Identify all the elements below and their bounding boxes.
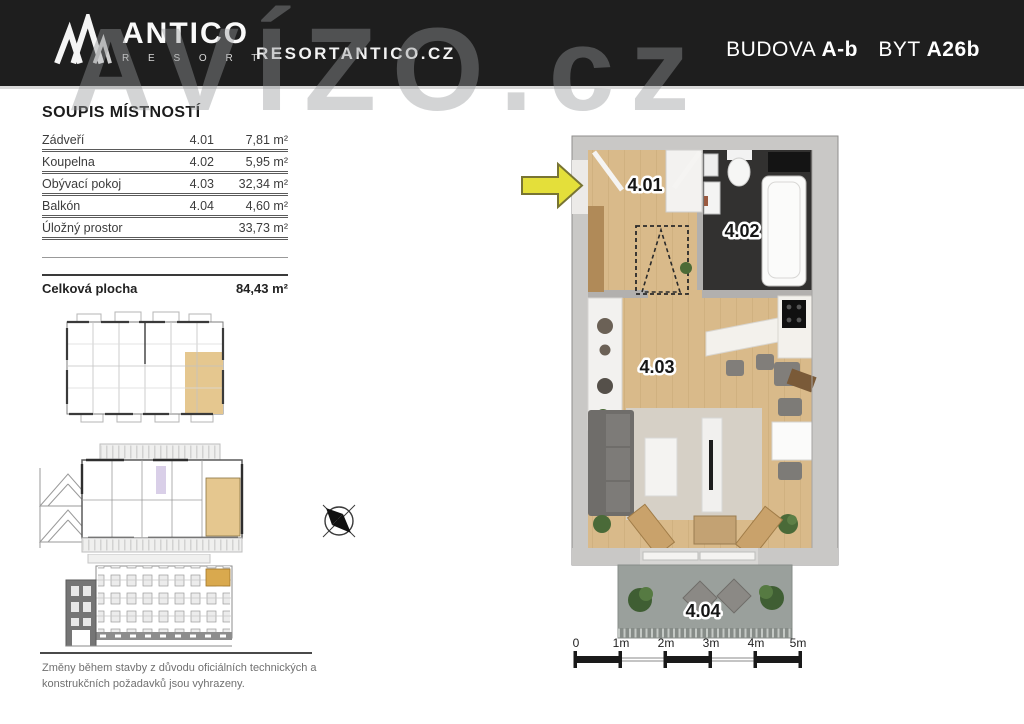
bar-stool <box>756 354 774 370</box>
building-label: BUDOVA <box>726 38 815 61</box>
highlighted-apartment <box>185 352 223 414</box>
building-value: A-b <box>821 38 858 61</box>
floorplan-sheet: ANTICO R E S O R T RESORTANTICO.CZ BUDOV… <box>0 0 1024 724</box>
footer-divider <box>40 652 312 654</box>
table-row: Úložný prostor 33,73 m² <box>42 218 288 240</box>
brand-logo: ANTICO R E S O R T <box>54 14 265 68</box>
header-divider <box>0 86 1024 89</box>
header-bar: ANTICO R E S O R T RESORTANTICO.CZ BUDOV… <box>0 0 1024 86</box>
sink <box>704 154 718 176</box>
wardrobe <box>588 206 604 292</box>
bar-stool <box>726 360 744 376</box>
compass-north-icon <box>318 500 360 542</box>
table-row: Balkón 4.04 4,60 m² <box>42 196 288 218</box>
table-row: Zádveří 4.01 7,81 m² <box>42 130 288 152</box>
table-row: Koupelna 4.02 5,95 m² <box>42 152 288 174</box>
svg-text:5m: 5m <box>790 636 807 650</box>
cooktop <box>782 300 806 328</box>
low-table <box>694 516 736 544</box>
disclaimer-text: Změny během stavby z důvodu oficiálních … <box>42 661 322 693</box>
brand-name: ANTICO <box>122 19 265 49</box>
table-total-row: Celková plocha 84,43 m² <box>42 274 288 298</box>
plant <box>680 262 692 274</box>
svg-text:4m: 4m <box>748 636 765 650</box>
dining-chair <box>778 462 802 480</box>
room-label-balcony: 4.04 <box>685 601 720 621</box>
svg-text:2m: 2m <box>658 636 675 650</box>
room-label-living: 4.03 <box>639 357 674 377</box>
room-label-hall: 4.01 <box>627 175 662 195</box>
dining-table <box>772 422 812 460</box>
coffee-table <box>645 438 677 496</box>
highlighted-windows <box>206 569 230 586</box>
scale-bar: 0 1m 2m 3m 4m 5m <box>573 636 807 668</box>
unit-label: BYT <box>878 38 920 61</box>
room-table: Zádveří 4.01 7,81 m² Koupelna 4.02 5,95 … <box>42 130 288 298</box>
table-spacer-row <box>42 240 288 258</box>
svg-text:3m: 3m <box>703 636 720 650</box>
svg-text:0: 0 <box>573 636 580 650</box>
room-label-bathroom: 4.02 <box>724 221 759 241</box>
vanity-counter <box>768 152 810 172</box>
room-list-title: SOUPIS MÍSTNOSTÍ <box>42 104 200 122</box>
unit-value: A26b <box>927 38 980 61</box>
elevation-thumbnail <box>60 554 250 656</box>
brand-subtitle: R E S O R T <box>122 53 265 64</box>
website-text: RESORTANTICO.CZ <box>256 44 456 64</box>
highlighted-room <box>206 478 240 536</box>
plant <box>593 515 611 533</box>
unit-title: BUDOVA A-b BYT A26b <box>726 38 980 62</box>
toilet <box>728 158 750 186</box>
main-floor-plan: 4.01 4.02 4.03 4.04 0 1m 2m <box>515 128 860 693</box>
bathtub <box>762 176 806 286</box>
table-row: Obývací pokoj 4.03 32,34 m² <box>42 174 288 196</box>
tv <box>709 440 713 490</box>
mountain-logo-icon <box>54 14 112 68</box>
key-plan-thumbnail <box>57 308 233 428</box>
attic-plan-thumbnail <box>38 438 248 556</box>
dining-chair <box>778 398 802 416</box>
svg-text:1m: 1m <box>613 636 630 650</box>
